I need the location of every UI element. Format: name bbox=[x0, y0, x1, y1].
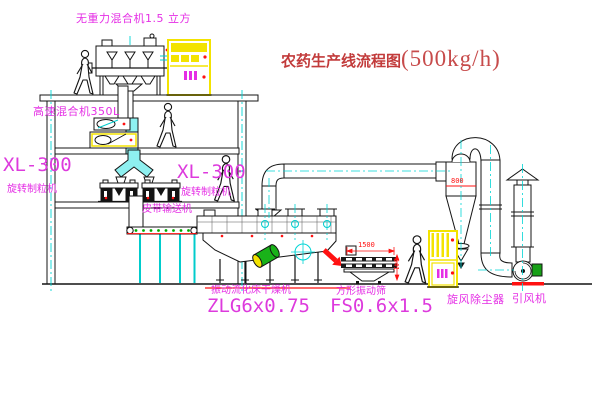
title-text: 农药生产线流程图 bbox=[281, 54, 401, 70]
worker-figure bbox=[405, 236, 426, 283]
button-dot bbox=[203, 55, 206, 58]
fan-base bbox=[512, 282, 544, 286]
downcomer-duct bbox=[479, 160, 512, 277]
process-flow-drawing: 农药生产线流程图(500kg/h) 无重力混合机1.5 立方 高速混合机350L… bbox=[0, 0, 600, 403]
control-cabinet-bottom bbox=[427, 231, 459, 287]
discharge-duct bbox=[129, 196, 143, 227]
gauge-icon bbox=[184, 71, 197, 80]
label-granulator-left-model: XL-300 bbox=[3, 156, 72, 175]
drawing-title: 农药生产线流程图(500kg/h) bbox=[281, 46, 501, 72]
worker-figure bbox=[157, 103, 176, 147]
dim-sieve-drop: 541 bbox=[392, 258, 399, 271]
label-high-speed-mixer: 高速混合机350L bbox=[33, 106, 120, 117]
fan-motor bbox=[532, 264, 542, 276]
label-granulator-right-name: 旋转制粒机 bbox=[181, 188, 231, 198]
button-dot bbox=[451, 271, 454, 274]
dim-cyclone-size: 800 bbox=[451, 178, 464, 185]
label-granulator-left-name: 旋转制粒机 bbox=[7, 185, 57, 195]
dim-sieve-length: 1500 bbox=[358, 242, 375, 249]
button-dot bbox=[202, 75, 205, 78]
label-gravity-mixer: 无重力混合机1.5 立方 bbox=[76, 13, 191, 24]
button-dot bbox=[451, 238, 454, 241]
label-granulator-right-model: XL-300 bbox=[177, 163, 246, 182]
control-cabinet-top bbox=[166, 40, 212, 95]
label-fan: 引风机 bbox=[512, 293, 547, 304]
square-vibrating-sieve bbox=[341, 246, 399, 284]
gauge-icon bbox=[437, 269, 448, 278]
exhaust-duct bbox=[257, 164, 440, 217]
granulator-right bbox=[140, 177, 182, 202]
label-belt-conveyor: 皮带输送机 bbox=[142, 205, 192, 215]
label-dryer-model: ZLG6x0.75 bbox=[207, 297, 310, 316]
induced-draft-fan bbox=[512, 247, 544, 286]
title-capacity: (500kg/h) bbox=[401, 46, 501, 71]
label-sieve-model: FS0.6x1.5 bbox=[330, 297, 433, 316]
belt-conveyor bbox=[127, 227, 197, 283]
label-cyclone: 旋风除尘器 bbox=[447, 294, 505, 305]
